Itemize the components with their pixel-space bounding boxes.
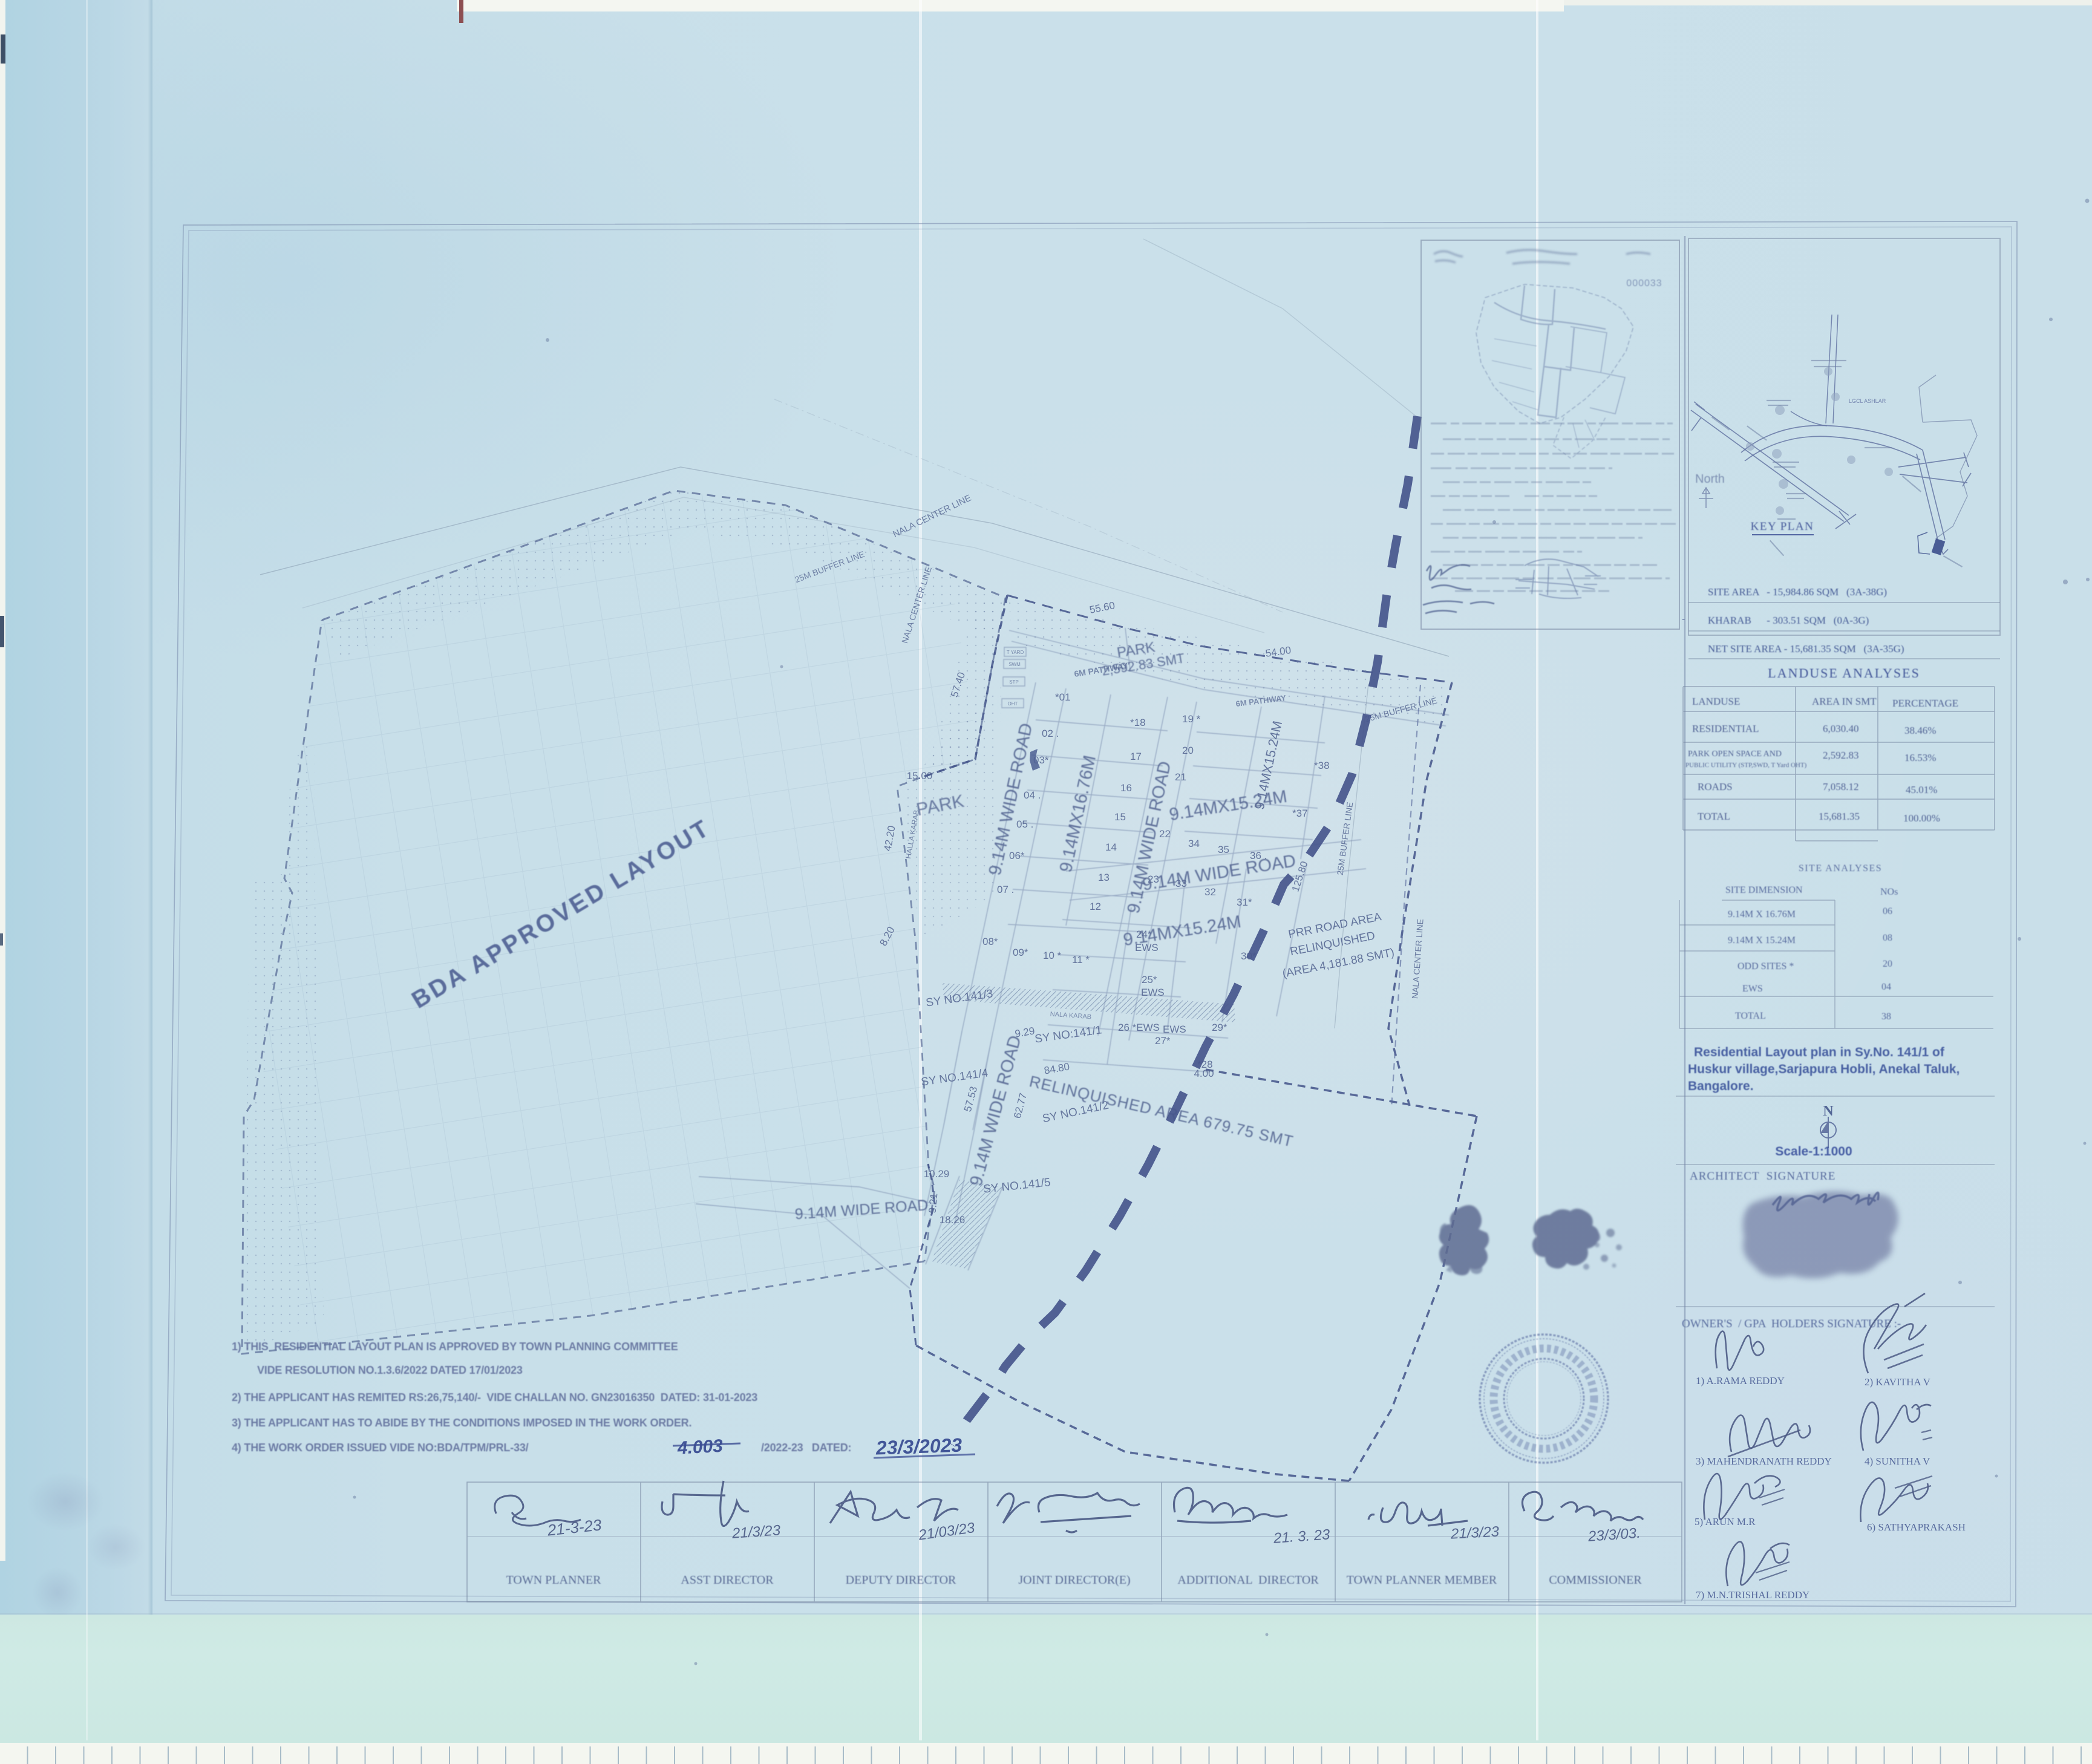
svg-text:06*: 06* — [1009, 850, 1025, 861]
svg-text:PUBLIC UTILITY (STP,SWD, T Yar: PUBLIC UTILITY (STP,SWD, T Yard OHT) — [1685, 762, 1807, 769]
svg-text:9.29: 9.29 — [1014, 1025, 1036, 1039]
svg-text:COMMISSIONER: COMMISSIONER — [1549, 1573, 1642, 1587]
svg-text:EWS: EWS — [1135, 942, 1159, 953]
svg-text:27*: 27* — [1155, 1035, 1171, 1047]
svg-text:14: 14 — [1105, 841, 1117, 853]
svg-text:12: 12 — [1090, 901, 1101, 912]
svg-text:4) THE WORK ORDER ISSUED VIDE: 4) THE WORK ORDER ISSUED VIDE NO:BDA/TPM… — [232, 1442, 529, 1454]
svg-text:ASST DIRECTOR: ASST DIRECTOR — [681, 1573, 774, 1587]
svg-text:ARCHITECT SIGNATURE: ARCHITECT SIGNATURE — [1690, 1170, 1835, 1183]
svg-text:TOWN PLANNER MEMBER: TOWN PLANNER MEMBER — [1347, 1573, 1497, 1587]
svg-text:21: 21 — [1175, 771, 1186, 783]
svg-text:35: 35 — [1218, 844, 1229, 855]
svg-text:55.60: 55.60 — [1088, 599, 1116, 616]
svg-text:OHT: OHT — [1008, 701, 1018, 707]
svg-text:NALA KARAB: NALA KARAB — [1050, 1011, 1091, 1021]
svg-text:7) M.N.TRISHAL REDDY: 7) M.N.TRISHAL REDDY — [1696, 1589, 1809, 1601]
svg-text:*01: *01 — [1055, 691, 1071, 703]
svg-text:PERCENTAGE: PERCENTAGE — [1892, 697, 1958, 709]
svg-text:19 *: 19 * — [1182, 713, 1201, 725]
svg-text:06: 06 — [1883, 906, 1892, 916]
svg-text:21/03/23: 21/03/23 — [917, 1520, 976, 1544]
svg-text:21/3/23: 21/3/23 — [1450, 1523, 1500, 1542]
svg-text:21-3-23: 21-3-23 — [546, 1515, 603, 1539]
svg-text:3) MAHENDRANATH REDDY: 3) MAHENDRANATH REDDY — [1696, 1455, 1832, 1467]
svg-text:9.14MX16.76M: 9.14MX16.76M — [1056, 754, 1100, 874]
svg-text:SY NO.141/5: SY NO.141/5 — [982, 1176, 1051, 1196]
svg-text:04 .: 04 . — [1024, 789, 1041, 801]
svg-text:31*: 31* — [1237, 897, 1252, 908]
svg-text:PARK OPEN SPACE AND: PARK OPEN SPACE AND — [1688, 750, 1782, 759]
svg-text:33: 33 — [1175, 878, 1187, 889]
svg-text:26 *EWS: 26 *EWS — [1118, 1022, 1160, 1033]
svg-text:*37: *37 — [1292, 808, 1308, 819]
svg-text:LANDUSE: LANDUSE — [1692, 696, 1740, 707]
svg-text:KHARAB - 303.51 SQM (0A: KHARAB - 303.51 SQM (0A-3G) — [1708, 615, 1869, 626]
svg-text:21. 3. 23: 21. 3. 23 — [1272, 1526, 1331, 1547]
svg-text:/2022-23 DATED:: /2022-23 DATED: — [761, 1442, 851, 1454]
svg-text:2,592.83: 2,592.83 — [1823, 750, 1859, 761]
svg-text:84.80: 84.80 — [1043, 1060, 1070, 1076]
svg-text:EWS: EWS — [1742, 984, 1763, 994]
svg-text:16.53%: 16.53% — [1904, 752, 1936, 763]
svg-text:TOWN PLANNER: TOWN PLANNER — [506, 1573, 602, 1587]
svg-text:62.77: 62.77 — [1012, 1092, 1029, 1120]
svg-text:NALA CENTER LINE: NALA CENTER LINE — [1410, 918, 1425, 999]
svg-text:*38: *38 — [1314, 760, 1330, 771]
svg-text:ADDITIONAL DIRECTOR: ADDITIONAL DIRECTOR — [1177, 1573, 1319, 1587]
svg-text:Scale-1:1000: Scale-1:1000 — [1775, 1145, 1852, 1158]
svg-text:ROADS: ROADS — [1698, 781, 1733, 792]
svg-text:3) THE APPLICANT HAS TO ABIDE: 3) THE APPLICANT HAS TO ABIDE BY THE CON… — [232, 1417, 691, 1429]
svg-text:6,030.40: 6,030.40 — [1823, 723, 1859, 734]
svg-text:38.46%: 38.46% — [1904, 725, 1936, 736]
svg-text:10.29: 10.29 — [924, 1168, 950, 1180]
svg-text:05 .: 05 . — [1016, 818, 1033, 830]
svg-text:AREA IN SMT: AREA IN SMT — [1812, 696, 1877, 707]
svg-text:9.14M X 16.76M: 9.14M X 16.76M — [1728, 909, 1796, 920]
svg-text:18.26: 18.26 — [940, 1214, 966, 1226]
svg-text:VIDE RESOLUTION NO.1.3.6/2022: VIDE RESOLUTION NO.1.3.6/2022 DATED 17/0… — [257, 1364, 523, 1376]
svg-text:22: 22 — [1159, 828, 1171, 840]
svg-text:SITE ANALYSES: SITE ANALYSES — [1799, 863, 1882, 874]
svg-text:02 .: 02 . — [1042, 728, 1059, 739]
svg-text:LGCL ASHLAR: LGCL ASHLAR — [1849, 398, 1886, 404]
svg-text:NET SITE AREA - 15,681.35 SQM: NET SITE AREA - 15,681.35 SQM (3A-35G) — [1708, 643, 1904, 655]
svg-text:23/3/03.: 23/3/03. — [1587, 1525, 1641, 1545]
svg-text:11 *: 11 * — [1072, 954, 1090, 965]
svg-text:20: 20 — [1883, 959, 1892, 969]
svg-text:38: 38 — [1881, 1011, 1891, 1022]
svg-text:TOTAL: TOTAL — [1698, 811, 1730, 822]
svg-text:SY NO:141/1: SY NO:141/1 — [1034, 1024, 1102, 1045]
svg-text:6) SATHYAPRAKASH: 6) SATHYAPRAKASH — [1867, 1521, 1966, 1533]
svg-text:36 .: 36 . — [1250, 850, 1267, 861]
svg-text:NALA CENTER LINE: NALA CENTER LINE — [891, 493, 973, 540]
svg-text:15,681.35: 15,681.35 — [1819, 811, 1860, 822]
svg-text:04: 04 — [1881, 982, 1891, 992]
svg-text:32: 32 — [1205, 886, 1216, 898]
svg-text:07 .: 07 . — [997, 884, 1014, 895]
svg-text:EWS: EWS — [1141, 987, 1165, 998]
svg-text:23: 23 — [1148, 874, 1159, 885]
svg-text:EWS: EWS — [1163, 1024, 1186, 1035]
svg-text:OWNER'S / GPA HOLDERS SIGNAT: OWNER'S / GPA HOLDERS SIGNATURE :- — [1682, 1318, 1901, 1330]
svg-text:Residential Layout plan in Sy.: Residential Layout plan in Sy.No. 141/1 … — [1694, 1045, 1945, 1059]
svg-text:4.003: 4.003 — [676, 1436, 724, 1459]
svg-text:T YARD: T YARD — [1007, 650, 1024, 655]
svg-text:9.14M WIDE ROAD: 9.14M WIDE ROAD — [1141, 851, 1297, 895]
svg-text:ODD SITES *: ODD SITES * — [1737, 961, 1794, 972]
svg-text:42.20: 42.20 — [881, 825, 897, 852]
svg-text:RESIDENTIAL: RESIDENTIAL — [1692, 723, 1759, 734]
svg-text:34: 34 — [1188, 838, 1200, 849]
svg-text:JOINT DIRECTOR(E): JOINT DIRECTOR(E) — [1018, 1573, 1130, 1587]
svg-text:29*: 29* — [1212, 1022, 1227, 1033]
svg-text:9.14M X 15.24M: 9.14M X 15.24M — [1728, 935, 1796, 946]
svg-text:25*: 25* — [1142, 974, 1157, 985]
svg-text:LANDUSE ANALYSES: LANDUSE ANALYSES — [1768, 665, 1920, 681]
svg-text:08*: 08* — [982, 936, 998, 947]
svg-text:2) THE APPLICANT HAS REMITED R: 2) THE APPLICANT HAS REMITED RS:26,75,14… — [232, 1391, 757, 1403]
svg-text:7,058.12: 7,058.12 — [1823, 781, 1859, 792]
svg-text:SITE AREA - 15,984.86 SQM: SITE AREA - 15,984.86 SQM (3A-38G) — [1708, 586, 1887, 598]
svg-text:9.14M WIDE ROAD: 9.14M WIDE ROAD — [794, 1197, 929, 1223]
svg-text:9.21: 9.21 — [927, 1193, 940, 1214]
svg-text:NOs: NOs — [1880, 887, 1898, 897]
svg-text:-: - — [1682, 614, 1685, 624]
svg-text:4) SUNITHA V: 4) SUNITHA V — [1865, 1455, 1930, 1467]
svg-text:TOTAL: TOTAL — [1735, 1011, 1766, 1021]
svg-text:North: North — [1695, 472, 1725, 486]
svg-text:SY NO.141/2: SY NO.141/2 — [1041, 1099, 1110, 1126]
svg-text:13: 13 — [1098, 872, 1110, 883]
svg-text:SITE DIMENSION: SITE DIMENSION — [1725, 885, 1803, 895]
svg-text:20: 20 — [1182, 745, 1194, 756]
svg-text:15: 15 — [1114, 811, 1126, 823]
svg-text:000033: 000033 — [1626, 278, 1662, 289]
svg-text:5) ARUN M.R: 5) ARUN M.R — [1695, 1516, 1756, 1527]
svg-text:17: 17 — [1130, 751, 1142, 762]
svg-text:15.00: 15.00 — [907, 770, 933, 782]
svg-text:STP: STP — [1009, 679, 1019, 685]
svg-text:DEPUTY DIRECTOR: DEPUTY DIRECTOR — [846, 1573, 956, 1587]
svg-text:10 *: 10 * — [1043, 950, 1062, 961]
svg-text:9.14MX15.24M: 9.14MX15.24M — [1168, 787, 1289, 825]
svg-text:SWM: SWM — [1008, 662, 1021, 667]
svg-text:100.00%: 100.00% — [1903, 812, 1940, 824]
svg-text:KEY PLAN: KEY PLAN — [1751, 520, 1814, 533]
svg-text:24*: 24* — [1136, 929, 1152, 940]
svg-text:2) KAVITHA V: 2) KAVITHA V — [1865, 1376, 1931, 1388]
svg-text:Huskur village,Sarjapura Hobli: Huskur village,Sarjapura Hobli, Anekal T… — [1688, 1062, 1960, 1076]
svg-text:09*: 09* — [1013, 947, 1028, 958]
svg-text:21/3/23: 21/3/23 — [731, 1522, 781, 1542]
svg-text:Bangalore.: Bangalore. — [1688, 1079, 1754, 1093]
svg-text:BDA APPROVED LAYOUT: BDA APPROVED LAYOUT — [407, 814, 715, 1014]
svg-text:*18: *18 — [1130, 717, 1146, 728]
svg-text:16: 16 — [1120, 782, 1132, 794]
svg-text:45.01%: 45.01% — [1906, 784, 1937, 795]
svg-text:8.20: 8.20 — [877, 925, 897, 948]
svg-text:08: 08 — [1883, 933, 1892, 943]
svg-text:1) THIS RESIDENTIAL LAYOUT PL: 1) THIS RESIDENTIAL LAYOUT PLAN IS APPRO… — [232, 1341, 678, 1353]
svg-text:1) A.RAMA REDDY: 1) A.RAMA REDDY — [1696, 1375, 1785, 1387]
